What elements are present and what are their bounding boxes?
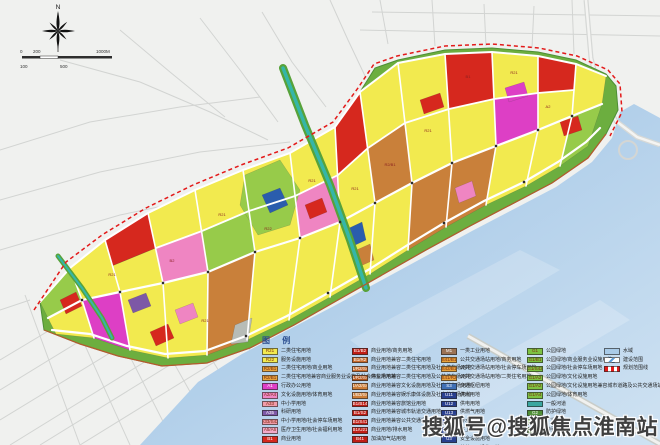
legend-label: 商业用地 (281, 437, 301, 442)
legend-swatch: B1/R2/S42 (352, 375, 368, 381)
legend-item: G1/A2公园绿地/文化设施用地 (527, 373, 660, 382)
parcel-code-label: R21 (201, 318, 209, 323)
legend-label: 建设范围 (623, 358, 643, 363)
legend-item: 水域 (604, 347, 648, 356)
legend-swatch: G1/B1 (527, 357, 543, 363)
legend-label: 商业用地/排水用地 (371, 428, 412, 433)
legend-label: 公园绿地 (546, 349, 566, 354)
legend-swatch: B1/S2 (352, 410, 368, 416)
legend-label: 行政办公用地 (281, 384, 311, 389)
parcel-code-label: B2 (170, 258, 176, 263)
legend-label: 公共交通场站用地/社会停车场用地 (460, 366, 536, 371)
legend-label: 医疗卫生用地/社会福利用地 (281, 428, 342, 433)
legend-label: 加油加气站用地 (371, 437, 406, 442)
parcel-code-label: R21 (351, 186, 359, 191)
legend-item: S41/R2公共交通场站用地/二类住宅用地 (441, 373, 536, 382)
legend-swatch: B1/R2/S42 (352, 366, 368, 372)
legend-swatch: G1/S42 (527, 366, 543, 372)
legend-swatch: B1/B3/S42 (352, 392, 368, 398)
intersection-node (374, 202, 376, 204)
legend-label: 服务设施用地 (281, 358, 311, 363)
legend-swatch (604, 348, 620, 354)
intersection-node (254, 251, 256, 253)
parcel-code-label: R21 (218, 212, 226, 217)
legend-label: 中小学用地 (281, 402, 306, 407)
parcel-code-label: R21 (108, 272, 116, 277)
legend-swatch: G1/A2 (527, 375, 543, 381)
legend-label: 水域 (623, 349, 633, 354)
compass-and-scalebar: N 0 200 1000M 100 500 (0, 0, 130, 85)
legend-label: 供电用地 (460, 402, 480, 407)
intersection-node (451, 162, 453, 164)
legend-label: 公园绿地/文化设施用地兼容城市道路及公共交通场站用地 (546, 384, 660, 389)
legend-swatch: G1/A2 (527, 383, 543, 389)
intersection-node (207, 271, 209, 273)
legend-swatch: A33/S42 (262, 419, 278, 425)
legend-swatch: B1 (262, 436, 278, 442)
intersection-node (162, 282, 164, 284)
legend-swatch: B1/S41 (352, 419, 368, 425)
legend-label: 商业用地/商务用地 (371, 349, 412, 354)
legend-swatch: S41/B1 (441, 357, 457, 363)
legend-swatch: A1 (262, 383, 278, 389)
legend-label: 一类工业用地 (460, 349, 490, 354)
legend-swatch: R2/B1 (262, 366, 278, 372)
legend-swatch: B1/R2 (352, 357, 368, 363)
legend-label: 交通枢纽用地 (460, 384, 490, 389)
parcel-code-label: R22 (264, 226, 272, 231)
legend-item: S42/B1公共交通场站用地/社会停车场用地 (441, 365, 536, 374)
legend-label: 规划范围线 (623, 366, 648, 371)
legend-swatch: S42/B1 (441, 366, 457, 372)
watermark: 搜狐号@搜狐焦点淮南站 (422, 411, 658, 441)
legend-label: 公园绿地/体育用地 (546, 393, 587, 398)
legend-swatch: R22 (262, 357, 278, 363)
scale-tick: 500 (60, 64, 68, 69)
legend-item: 建设范围 (604, 356, 648, 365)
intersection-node (495, 145, 497, 147)
parcel-code-label: R21 (308, 178, 316, 183)
legend-label: 一般河道 (546, 402, 566, 407)
legend-label: 供水用地 (460, 393, 480, 398)
legend-label: 中小学用地/社会停车场用地 (281, 419, 342, 424)
legend-label: 商业用地兼容二类住宅用地 (371, 358, 431, 363)
legend-swatch (527, 401, 543, 407)
intersection-node (443, 222, 445, 224)
compass-rose-icon (42, 11, 75, 49)
intersection-node (537, 129, 539, 131)
parcel-code-label: A2 (546, 104, 552, 109)
legend-swatch: B1/B2 (352, 348, 368, 354)
parcel-code-label: R21 (510, 70, 518, 75)
legend-swatch: B1/U21 (352, 427, 368, 433)
scale-tick: 0 (20, 49, 23, 54)
legend-item: 一般河道 (527, 400, 660, 409)
scale-bar: 0 200 1000M 100 500 (20, 49, 112, 69)
intersection-node (299, 237, 301, 239)
planning-map-screenshot: R21R21R22R21R2/B1R21B1R21A2R21B2R21 N 0 … (0, 0, 660, 445)
legend-swatch: B1/B14 (352, 401, 368, 407)
legend-item: S3交通枢纽用地 (441, 382, 536, 391)
intersection-node (411, 182, 413, 184)
intersection-node (81, 299, 83, 301)
scale-tick: 200 (33, 49, 41, 54)
intersection-node (327, 292, 329, 294)
legend-swatch: M1 (441, 348, 457, 354)
scale-tick: 1000M (96, 49, 110, 54)
legend-swatch: G1 (527, 348, 543, 354)
legend-swatch: U11 (441, 392, 457, 398)
legend-swatch: S41/R2 (441, 375, 457, 381)
legend-swatch: A35 (262, 410, 278, 416)
legend-swatch: U12 (441, 401, 457, 407)
legend-swatch: G1/A4 (527, 392, 543, 398)
legend-label: 文化设施用地/体育用地 (281, 393, 332, 398)
compass-north-label: N (56, 4, 61, 11)
legend-label: 公园绿地/商业服务业设施用地 (546, 358, 612, 363)
parcel-code-label: R21 (424, 128, 432, 133)
intersection-node (245, 335, 247, 337)
legend-swatch (604, 366, 620, 372)
legend-label: 科研用地 (281, 410, 301, 415)
legend-swatch: R21 (262, 348, 278, 354)
legend-swatch: A33 (262, 401, 278, 407)
legend-label: 公共交通场站用地/二类住宅用地 (460, 375, 531, 380)
legend-swatch: S3 (441, 383, 457, 389)
intersection-node (339, 221, 341, 223)
legend-label: 二类住宅用地 (281, 349, 311, 354)
legend-swatch: B1/A2/S42 (352, 383, 368, 389)
legend-label: 商业用地兼容旅馆业用地 (371, 402, 426, 407)
legend-item: U12供电用地 (441, 400, 536, 409)
legend-label: 公园绿地/社会停车场用地 (546, 366, 602, 371)
parcel-code-label: R2/B1 (384, 162, 396, 167)
legend-label: 公园绿地/文化设施用地 (546, 375, 597, 380)
intersection-node (523, 181, 525, 183)
legend-item: U11供水用地 (441, 391, 536, 400)
legend-item: G1/A2公园绿地/文化设施用地兼容城市道路及公共交通场站用地 (527, 382, 660, 391)
scale-tick: 100 (20, 64, 28, 69)
intersection-node (119, 291, 121, 293)
parcel-code-label: B1 (466, 74, 472, 79)
legend-column: 水域建设范围规划范围线 (604, 347, 648, 373)
legend-swatch: R2/B1 (262, 375, 278, 381)
legend-item: S41/B1公共交通场站用地/商务用地 (441, 356, 536, 365)
legend-item: 规划范围线 (604, 365, 648, 374)
legend-swatch (604, 357, 620, 363)
legend-label: 公共交通场站用地/商务用地 (460, 358, 521, 363)
legend-swatch: B41 (352, 436, 368, 442)
legend-title: 图 例 (262, 335, 295, 346)
legend-swatch: A2/A4 (262, 392, 278, 398)
legend-item: G1/A4公园绿地/体育用地 (527, 391, 660, 400)
legend-item: M1一类工业用地 (441, 347, 536, 356)
legend-label: 二类住宅用地/商业用地 (281, 366, 332, 371)
legend-swatch: A5/A6 (262, 427, 278, 433)
intersection-node (571, 115, 573, 117)
